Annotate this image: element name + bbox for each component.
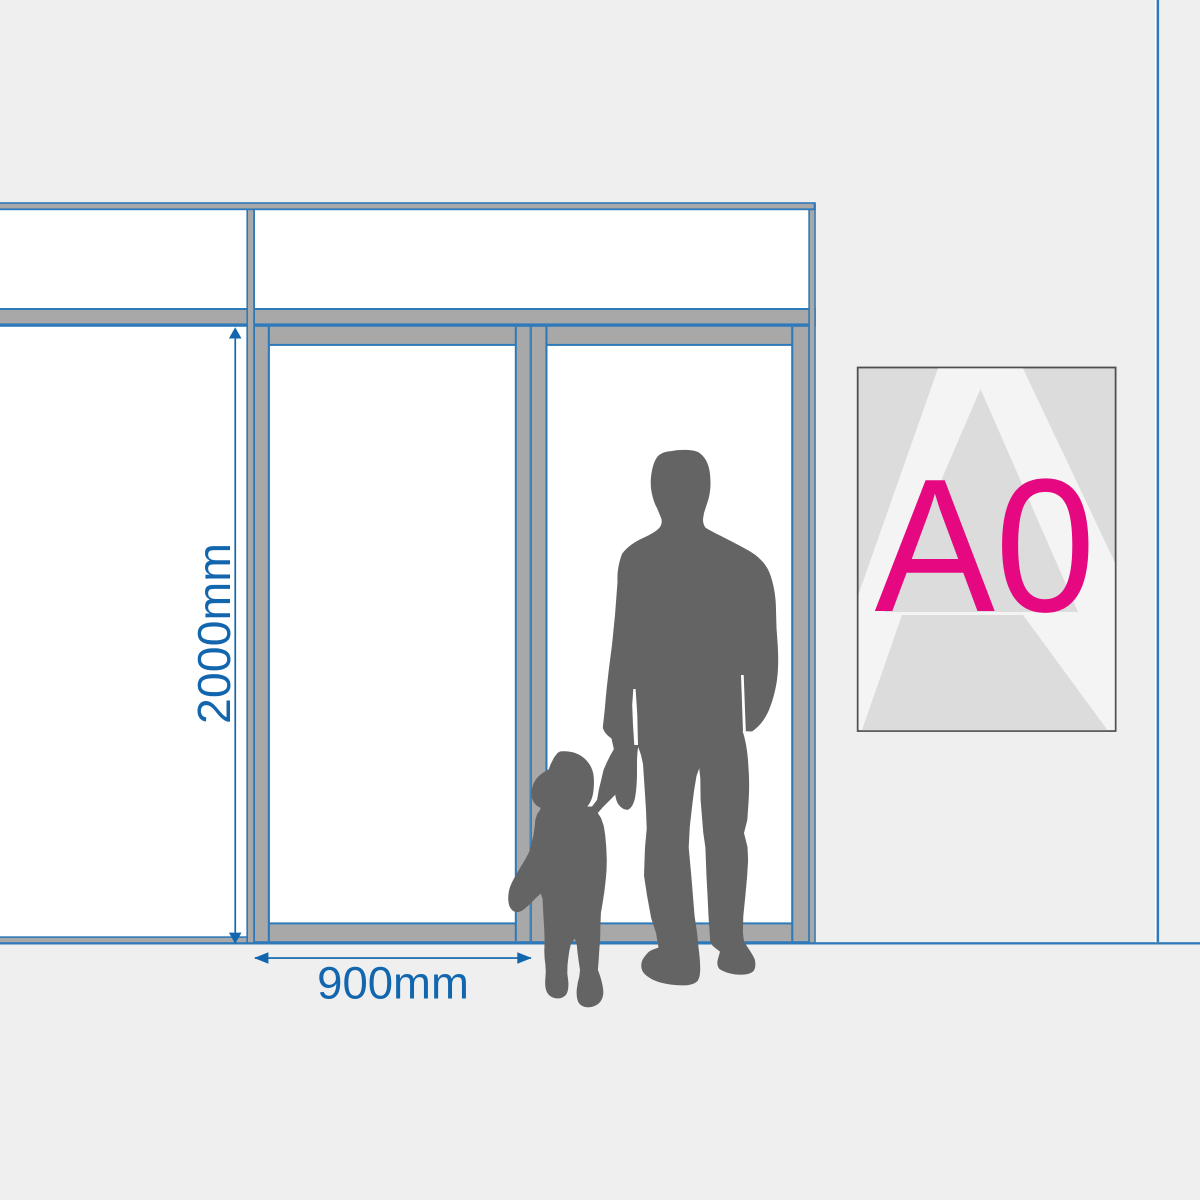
svg-text:2000mm: 2000mm: [188, 543, 240, 724]
svg-text:A0: A0: [875, 440, 1096, 652]
svg-text:900mm: 900mm: [317, 958, 469, 1009]
